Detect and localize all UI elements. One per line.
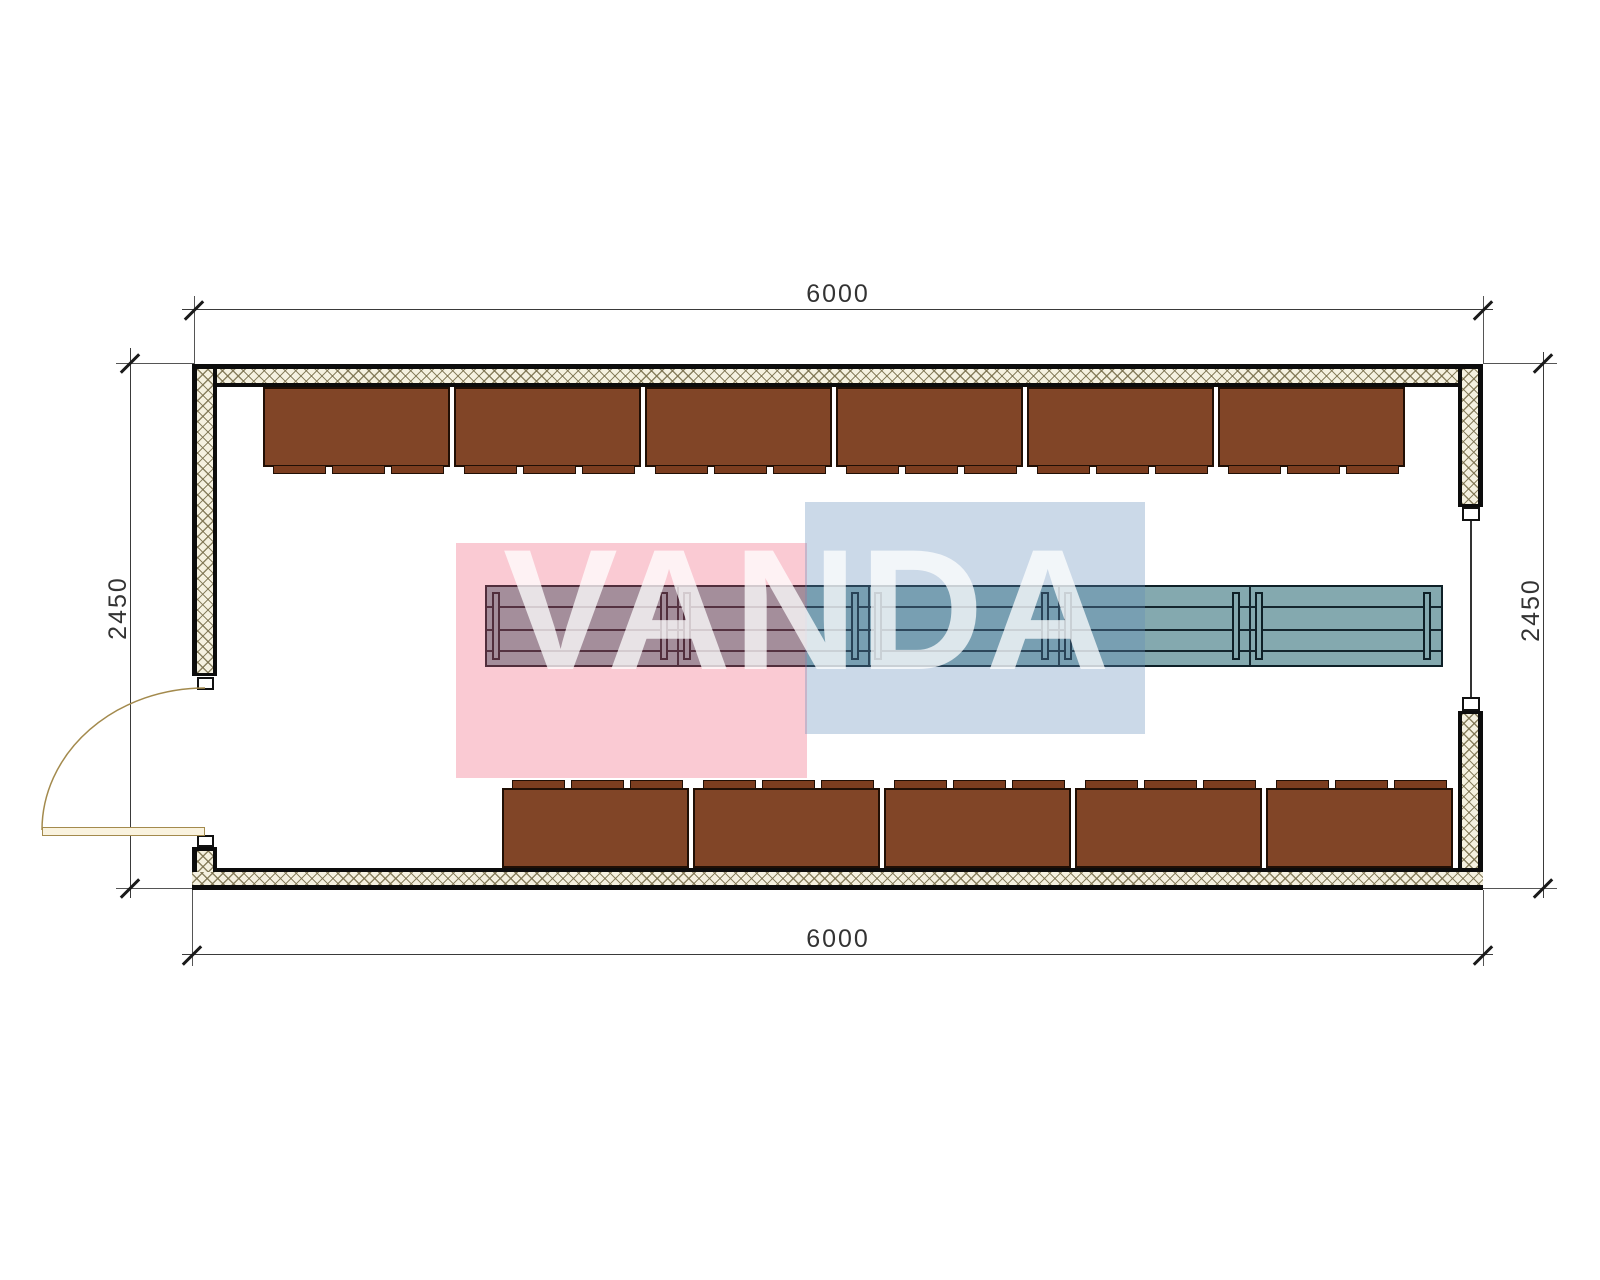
- door-swing-arc: [30, 682, 215, 837]
- bench-foot: [512, 780, 565, 789]
- bench-foot: [1144, 780, 1197, 789]
- dim-top-label: 6000: [763, 281, 913, 307]
- bench-body: [1075, 788, 1262, 868]
- bench-foot: [1346, 465, 1399, 474]
- window-glazing-line: [1470, 519, 1472, 699]
- bench-foot: [1394, 780, 1447, 789]
- window-cap-bottom: [1462, 697, 1480, 711]
- bench: [645, 387, 832, 475]
- bench-foot: [1085, 780, 1138, 789]
- table-leg: [1232, 592, 1240, 660]
- bench-body: [1027, 387, 1214, 467]
- wall-right-upper: [1458, 364, 1483, 507]
- bench-body: [645, 387, 832, 467]
- bench-body: [884, 788, 1071, 868]
- bench-foot: [894, 780, 947, 789]
- bench-foot: [391, 465, 444, 474]
- bench-foot: [464, 465, 517, 474]
- bench-foot: [1012, 780, 1065, 789]
- bench-foot: [762, 780, 815, 789]
- window-cap-top: [1462, 507, 1480, 521]
- dim-bottom-line: [182, 954, 1493, 955]
- bench: [263, 387, 450, 475]
- bench-foot: [846, 465, 899, 474]
- bench: [1218, 387, 1405, 475]
- bench-foot: [273, 465, 326, 474]
- table-module-divider: [1249, 587, 1251, 665]
- bench-foot: [905, 465, 958, 474]
- bench-foot: [714, 465, 767, 474]
- dim-left-label: 2450: [105, 533, 131, 683]
- bench: [502, 780, 689, 868]
- bench-foot: [571, 780, 624, 789]
- bench-body: [454, 387, 641, 467]
- bench: [1027, 387, 1214, 475]
- bench-foot: [821, 780, 874, 789]
- wall-door-jamb-stub: [192, 847, 217, 872]
- bench-foot: [1228, 465, 1281, 474]
- bench: [693, 780, 880, 868]
- bench-foot: [1037, 465, 1090, 474]
- bench-foot: [1203, 780, 1256, 789]
- bench: [1266, 780, 1453, 868]
- wall-bottom: [192, 868, 1483, 890]
- bench-foot: [703, 780, 756, 789]
- dim-top-line: [182, 309, 1493, 310]
- table-leg: [1423, 592, 1431, 660]
- dim-bottom-label: 6000: [763, 926, 913, 952]
- bench: [884, 780, 1071, 868]
- bench-foot: [953, 780, 1006, 789]
- bench: [1075, 780, 1262, 868]
- bench: [454, 387, 641, 475]
- bench-body: [1218, 387, 1405, 467]
- floor-plan-canvas: 6000 6000 2450 2450 VANDA: [0, 0, 1600, 1280]
- bench-foot: [523, 465, 576, 474]
- bench-body: [1266, 788, 1453, 868]
- bench-body: [263, 387, 450, 467]
- bench-body: [836, 387, 1023, 467]
- bench: [836, 387, 1023, 475]
- dim-right-label: 2450: [1518, 535, 1544, 685]
- bench-foot: [332, 465, 385, 474]
- bench-foot: [655, 465, 708, 474]
- wall-right-lower: [1458, 711, 1483, 890]
- bench-foot: [1096, 465, 1149, 474]
- table-leg: [1255, 592, 1263, 660]
- wall-top: [192, 364, 1483, 387]
- bench-foot: [1287, 465, 1340, 474]
- bench-foot: [1335, 780, 1388, 789]
- bench-foot: [630, 780, 683, 789]
- bench-body: [502, 788, 689, 868]
- bench-foot: [964, 465, 1017, 474]
- bench-foot: [582, 465, 635, 474]
- wall-left: [192, 364, 217, 676]
- bench-foot: [1155, 465, 1208, 474]
- watermark-text: VANDA: [503, 524, 1112, 696]
- bench-body: [693, 788, 880, 868]
- bench-foot: [773, 465, 826, 474]
- bench-foot: [1276, 780, 1329, 789]
